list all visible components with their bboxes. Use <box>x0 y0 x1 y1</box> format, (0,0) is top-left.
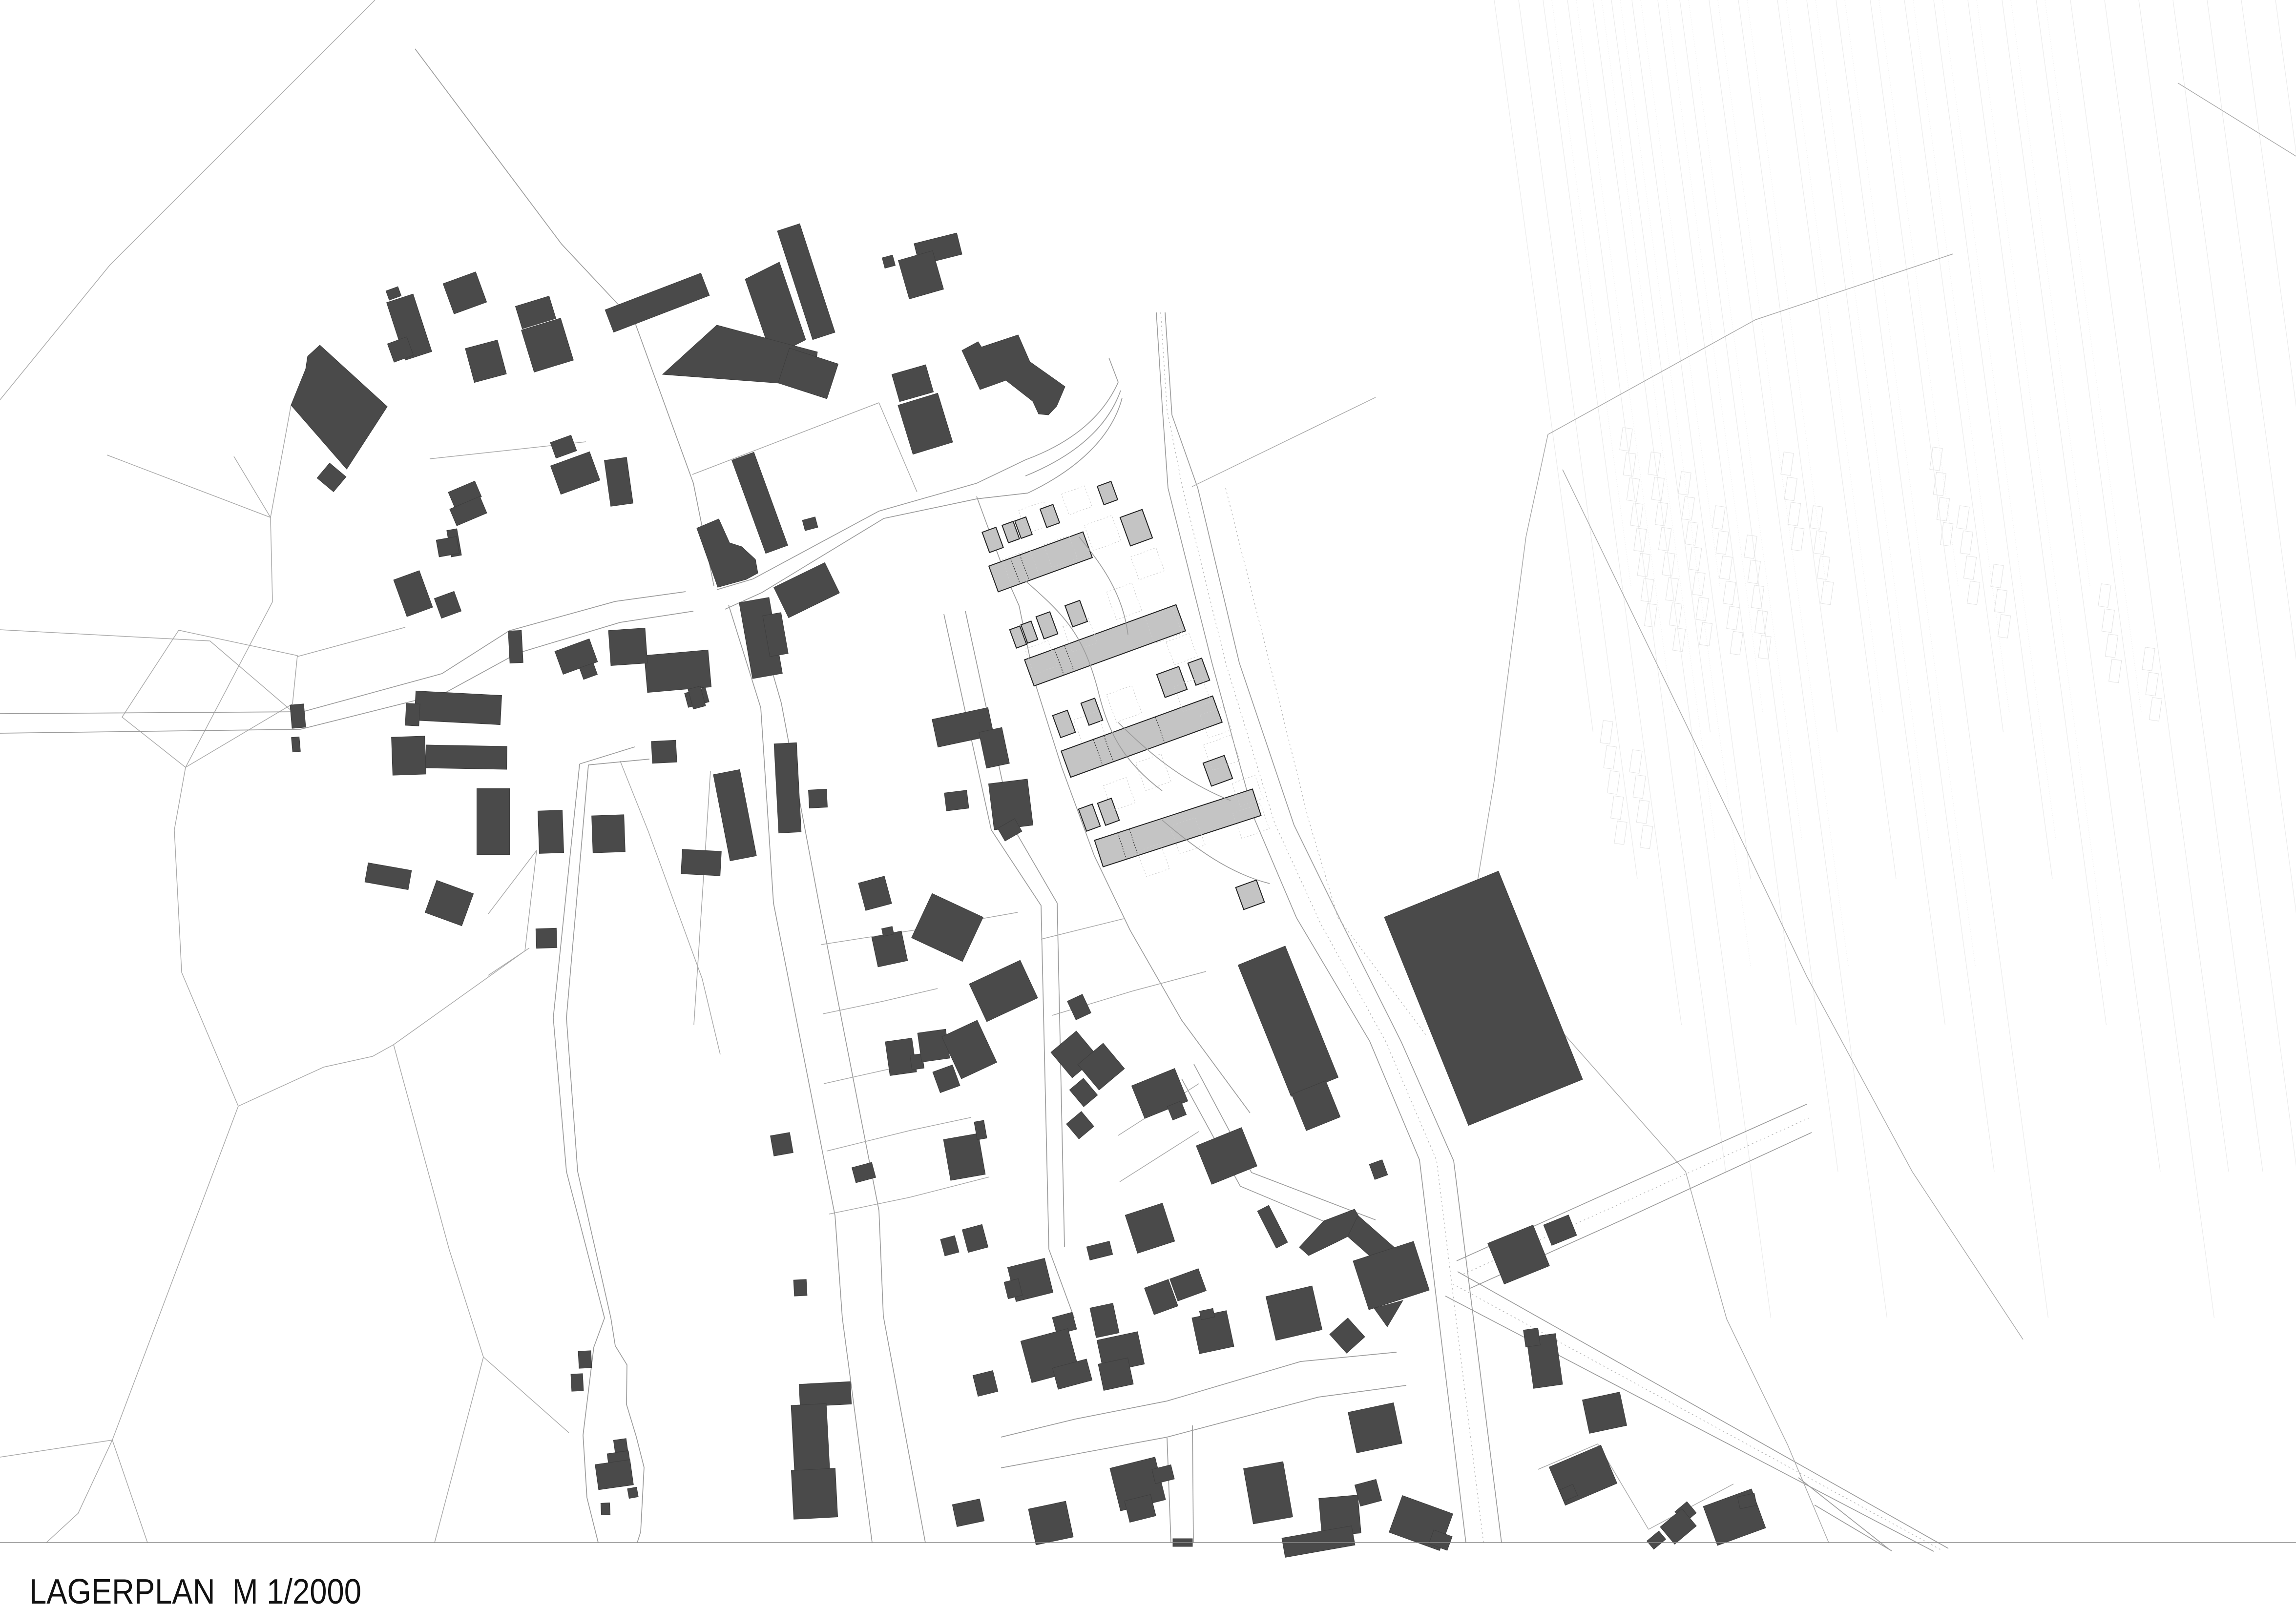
svg-text:LAGERPLAN M 1/2000: LAGERPLAN M 1/2000 <box>29 1572 361 1607</box>
